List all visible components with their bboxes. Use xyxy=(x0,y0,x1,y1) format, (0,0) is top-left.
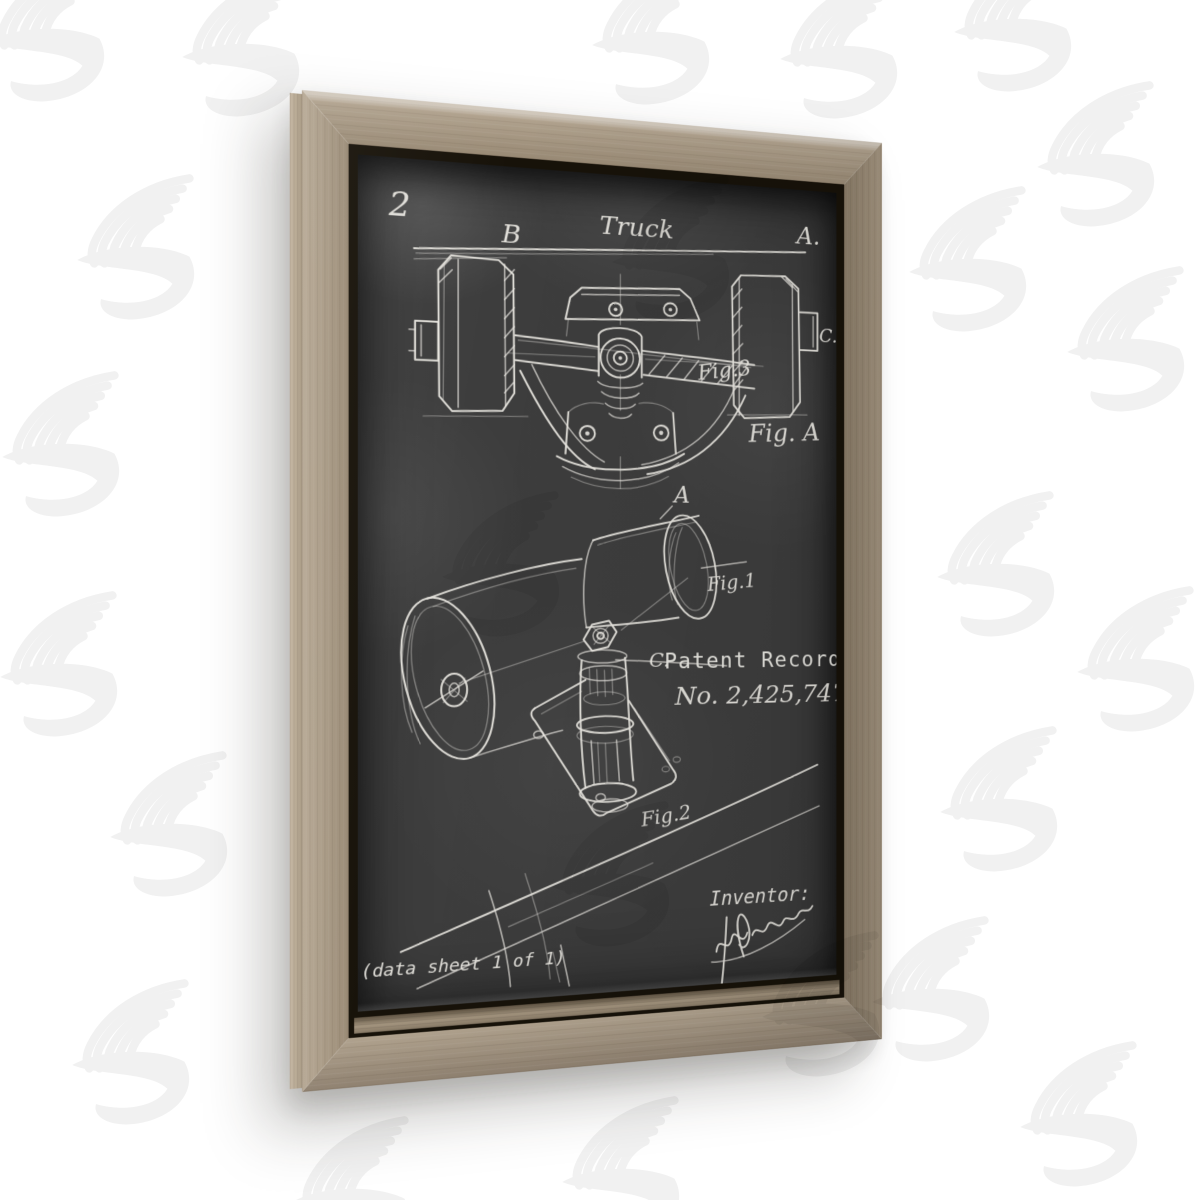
brand-watermark-icon xyxy=(1077,590,1194,731)
brand-watermark-icon xyxy=(1020,1045,1137,1186)
patent-number: No. 2,425,747 xyxy=(674,679,836,712)
canvas-print: 2 xyxy=(358,154,837,1011)
brand-watermark-icon xyxy=(954,0,1071,92)
brand-watermark-icon xyxy=(562,1100,679,1200)
product-photo-scene: 2 xyxy=(0,0,1200,1200)
frame-side-edge xyxy=(290,93,303,1089)
fig2-label: Fig.2 xyxy=(639,801,693,832)
frame-bar-left xyxy=(302,90,349,1092)
brand-watermark-icon xyxy=(2,375,119,516)
patent-record-title: Patent Record xyxy=(664,647,836,674)
brand-watermark-icon xyxy=(292,1120,409,1200)
truck-front-view-drawing xyxy=(409,225,817,492)
inventor-label: Inventor: xyxy=(710,883,811,911)
brand-watermark-icon xyxy=(0,0,104,102)
frame-bar-right xyxy=(844,139,882,1042)
label-c-front: C. xyxy=(819,325,836,347)
brand-watermark-icon xyxy=(182,0,299,117)
brand-watermark-icon xyxy=(909,190,1026,331)
data-sheet-note: (data sheet 1 of 1) xyxy=(361,949,565,983)
fig-a-label: Fig. A xyxy=(747,418,821,449)
brand-watermark-icon xyxy=(1037,85,1154,226)
floater-gap: 2 xyxy=(349,144,844,1038)
label-b: B xyxy=(501,218,521,250)
brand-watermark-icon xyxy=(0,595,117,736)
sheet-number-label: 2 xyxy=(388,186,411,226)
brand-watermark-icon xyxy=(110,755,227,896)
brand-watermark-icon xyxy=(780,0,897,119)
brand-watermark-icon xyxy=(1067,270,1184,411)
framed-canvas-art: 2 xyxy=(302,90,882,1092)
fig3-label: Fig.3 xyxy=(695,355,753,385)
label-truck: Truck xyxy=(600,210,674,245)
brand-watermark-icon xyxy=(592,0,709,105)
inventor-signature xyxy=(705,898,821,990)
brand-watermark-icon xyxy=(872,920,989,1061)
label-a-front: A. xyxy=(794,222,820,251)
brand-watermark-icon xyxy=(72,983,189,1124)
brand-watermark-icon xyxy=(940,730,1057,871)
brand-watermark-icon xyxy=(937,495,1054,636)
fig1-label: Fig.1 xyxy=(705,570,757,597)
label-a-perspective: A xyxy=(672,482,690,508)
brand-watermark-icon xyxy=(77,178,194,319)
patent-sketch-svg: 2 xyxy=(358,154,837,1011)
